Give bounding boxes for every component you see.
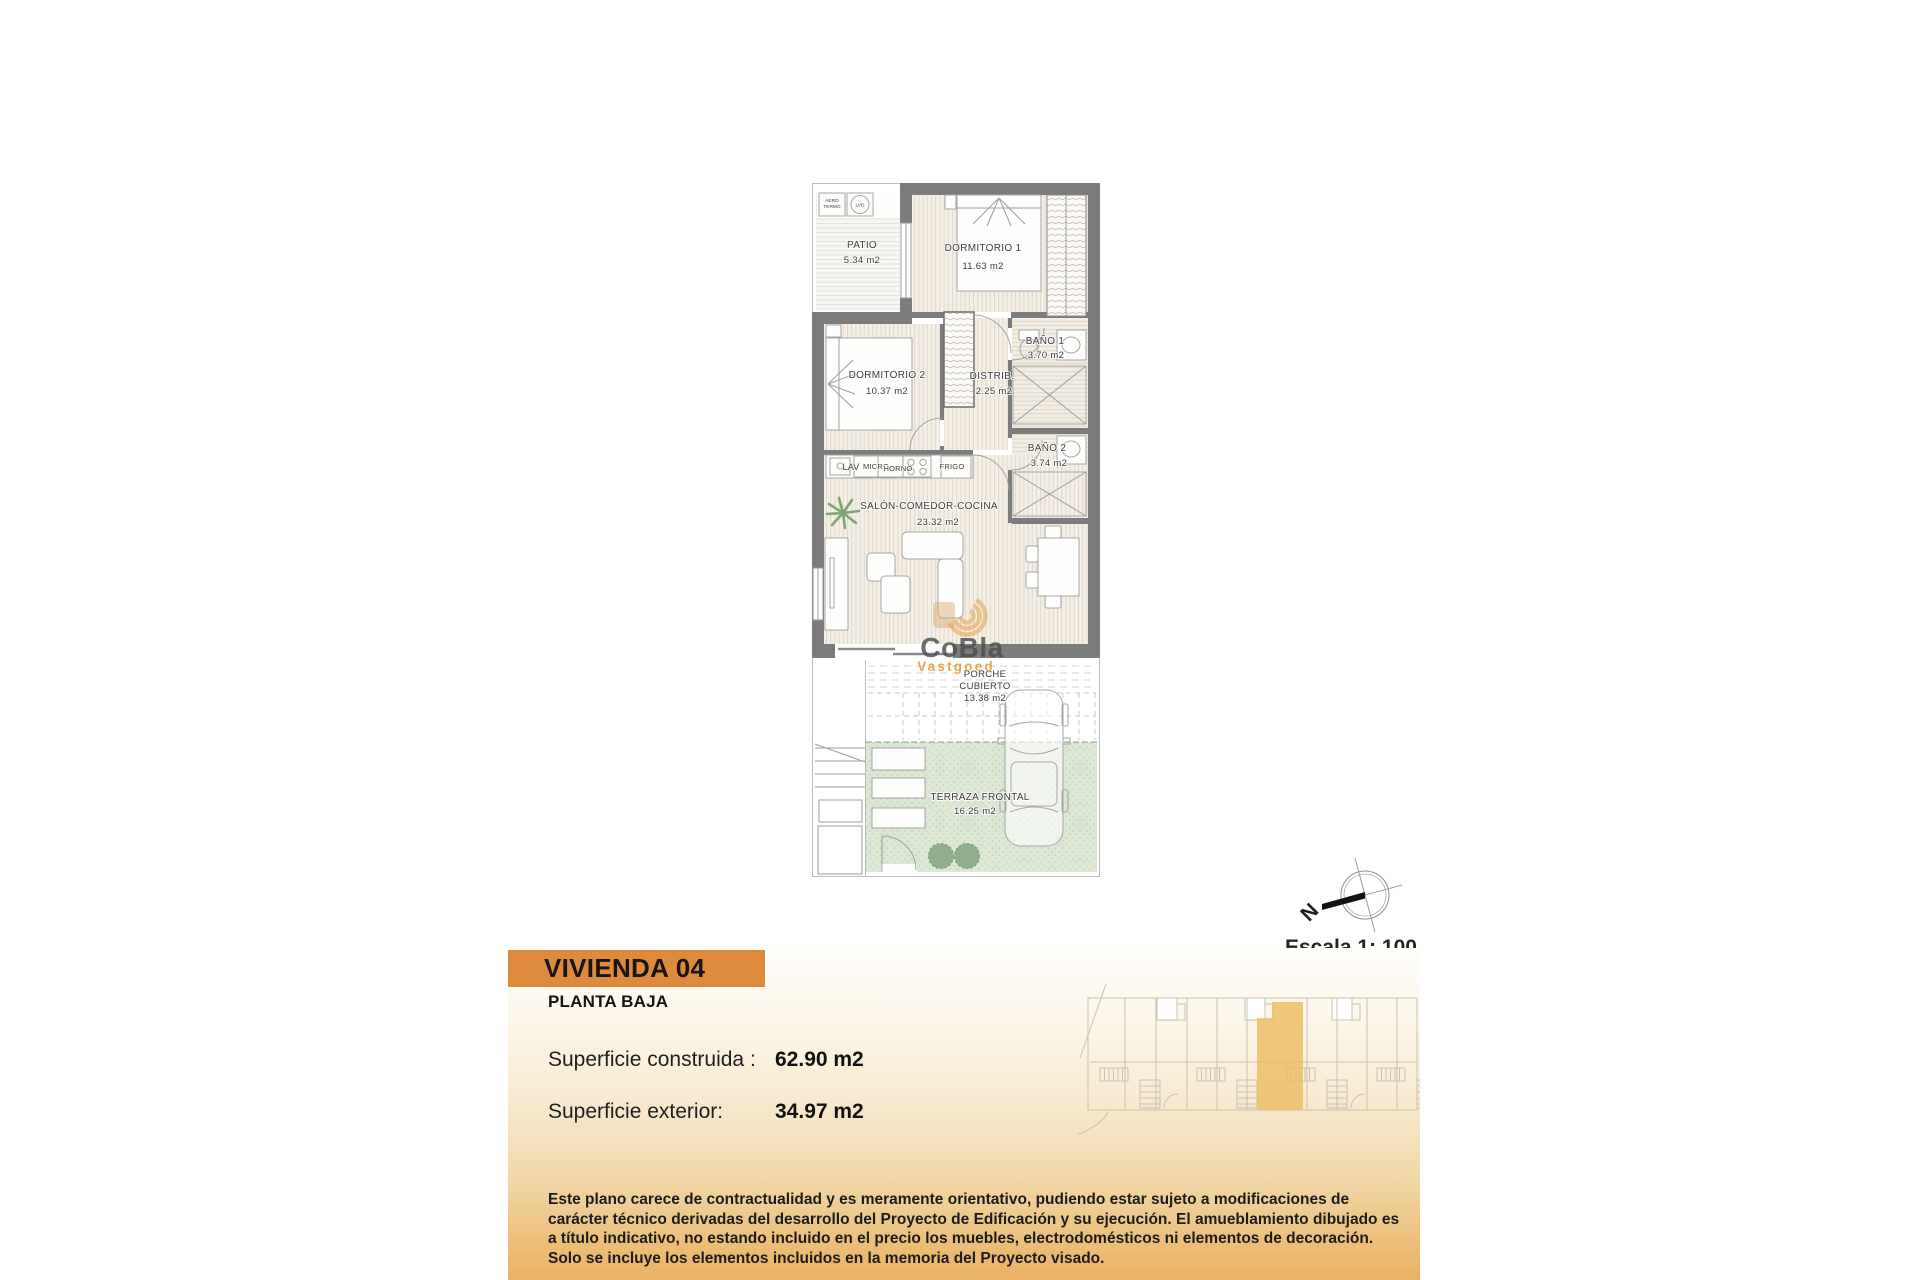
planter-icon <box>872 778 925 798</box>
compass-icon: N <box>1295 850 1415 950</box>
built-area-label: Superficie construida : <box>548 1048 756 1072</box>
plan-sheet: AERO TERMO LVD <box>0 0 1920 1280</box>
street-edge <box>1080 984 1106 1058</box>
area-label-dormitorio1: 11.63 m2 <box>962 261 1003 272</box>
north-label: N <box>1296 899 1323 926</box>
room-label-patio: PATIO <box>847 240 877 251</box>
car-icon <box>998 690 1070 846</box>
floor-label: PLANTA BAJA <box>548 992 668 1012</box>
chair-icon <box>1026 546 1038 562</box>
horno-label: HORNO <box>884 464 913 473</box>
bush-icon <box>929 844 954 869</box>
chair-icon <box>1045 526 1061 538</box>
site-key-plan <box>1078 982 1420 1152</box>
dining-table-icon <box>1038 538 1079 596</box>
area-label-salon: 23.32 m2 <box>917 517 959 528</box>
site-plan-lines <box>1078 984 1417 1134</box>
exterior-area-value: 34.97 m2 <box>775 1100 864 1124</box>
planter-icon <box>872 748 925 770</box>
room-label-dormitorio2: DORMITORIO 2 <box>849 370 926 381</box>
north-needle-icon <box>1322 892 1365 910</box>
room-label-salon: SALÓN-COMEDOR-COCINA <box>860 499 998 512</box>
chair-icon <box>1026 572 1038 588</box>
planter-icon <box>872 808 925 828</box>
aero-label-1: AERO <box>825 198 839 204</box>
aero-label-2: TERMO <box>823 204 841 210</box>
area-label-patio: 5.34 m2 <box>844 255 880 266</box>
room-label-terraza: TERRAZA FRONTAL <box>930 792 1029 803</box>
area-label-bano1: 3.70 m2 <box>1028 350 1064 361</box>
area-label-distribuidor: 2.25 m2 <box>976 386 1012 397</box>
room-label-distribuidor: DISTRIB. <box>970 371 1015 382</box>
area-label-porche: 13.38 m2 <box>964 693 1006 704</box>
area-label-dormitorio2: 10.37 m2 <box>866 386 908 397</box>
area-label-terraza: 16.25 m2 <box>954 806 996 817</box>
room-label-dormitorio1: DORMITORIO 1 <box>945 243 1022 254</box>
stairs-icon <box>815 744 865 874</box>
room-label-bano1: BAÑO 1 <box>1026 334 1065 347</box>
chair-icon <box>1045 596 1061 608</box>
side-table-icon <box>881 576 910 613</box>
area-label-bano2: 3.74 m2 <box>1031 458 1067 469</box>
hall-wardrobe-icon <box>944 312 974 407</box>
built-area-value: 62.90 m2 <box>775 1048 864 1072</box>
floor-plan: AERO TERMO LVD <box>805 178 1105 888</box>
exterior-area-label: Superficie exterior: <box>548 1100 723 1124</box>
tv-unit-icon <box>825 538 848 630</box>
frigo-label: FRIGO <box>940 462 965 471</box>
room-label-porche-1: PORCHE <box>964 669 1006 680</box>
room-label-porche-2: CUBIERTO <box>959 681 1010 692</box>
lvd-label: LVD <box>856 203 866 209</box>
disclaimer-text: Este plano carece de contractualidad y e… <box>548 1190 1400 1268</box>
unit-title: VIVIENDA 04 <box>508 950 765 987</box>
lav-label: LAV <box>843 462 860 472</box>
kitchen: LAV MICRO HORNO FRIGO <box>826 455 973 478</box>
room-label-bano2: BAÑO 2 <box>1028 441 1067 454</box>
bush-icon <box>955 844 980 869</box>
sofa-icon <box>902 532 963 559</box>
site-plan-highlight <box>1257 1002 1303 1110</box>
